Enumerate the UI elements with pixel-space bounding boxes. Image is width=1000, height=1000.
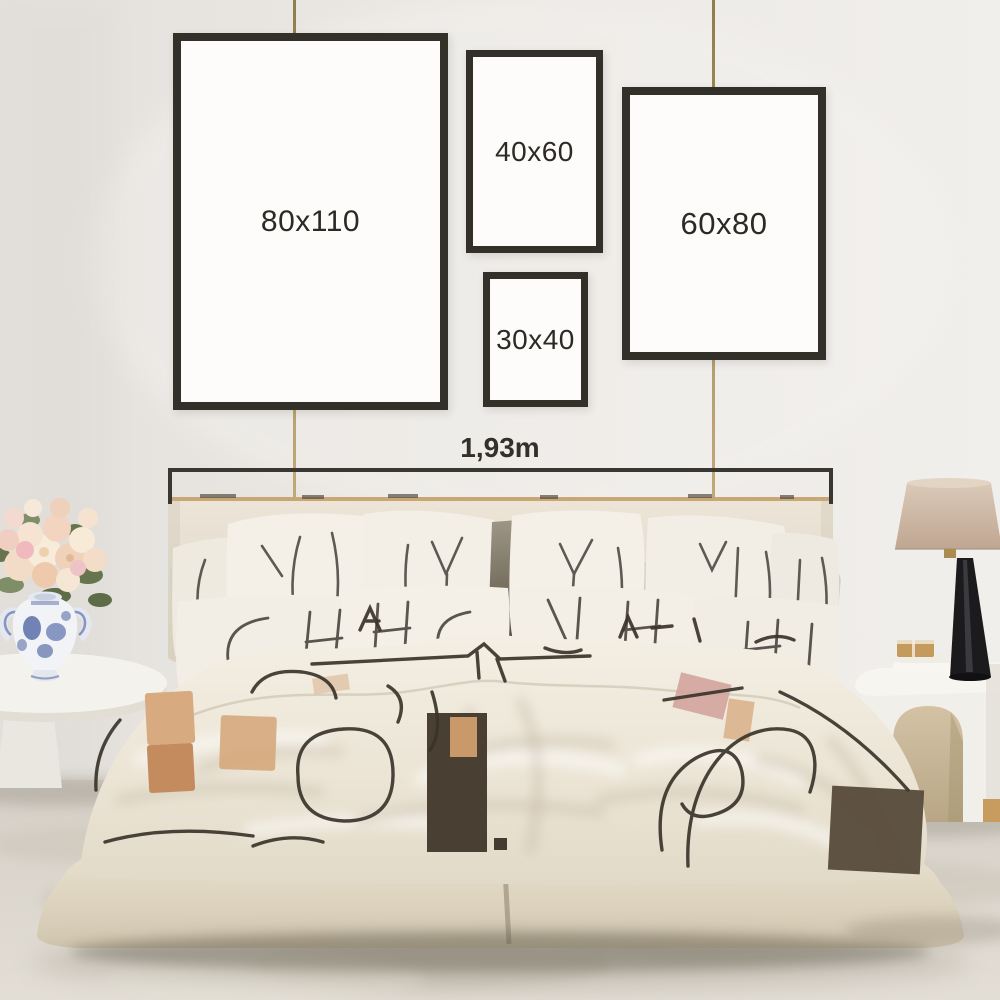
size-frame-40x60: 40x60 [466,50,603,253]
measurement-line [168,468,833,472]
frame-size-label: 40x60 [495,136,574,168]
measurement-tick-left [168,468,172,504]
size-guide-image: 80x110 40x60 60x80 30x40 1,93m [0,0,1000,1000]
size-frame-80x110: 80x110 [173,33,448,410]
size-frame-30x40: 30x40 [483,272,588,407]
frame-size-label: 60x80 [681,206,768,242]
size-frame-60x80: 60x80 [622,87,826,360]
frame-size-label: 80x110 [261,205,360,239]
frame-size-label: 30x40 [496,324,575,356]
measurement-tick-right [829,468,833,504]
measurement-label: 1,93m [390,432,610,464]
